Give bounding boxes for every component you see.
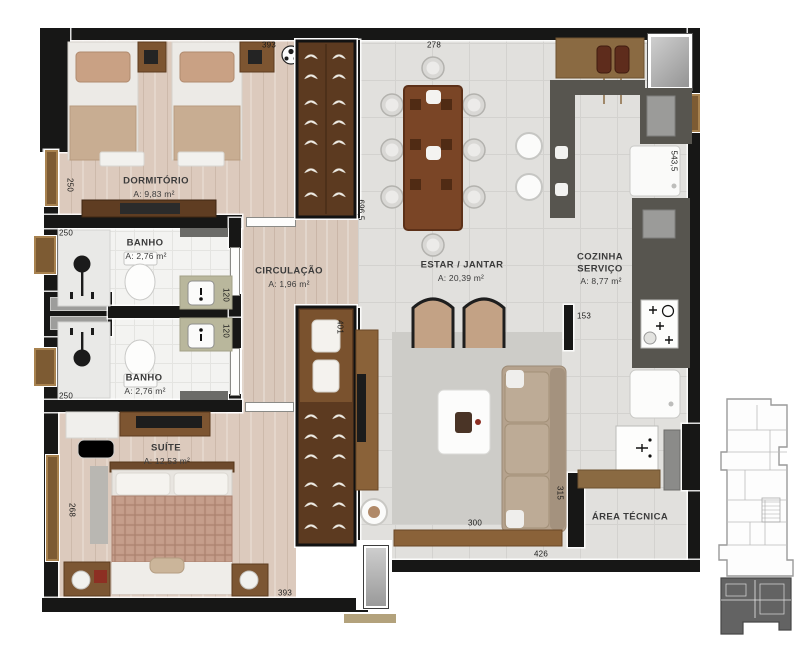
dim-153-kitchen: 153 (577, 312, 591, 321)
kitchen-counter-coffee (640, 88, 692, 144)
coffee-table (438, 390, 490, 454)
dim-426-bottom: 426 (534, 550, 548, 559)
dim-543-right: 543,5 (670, 150, 679, 171)
dim-250-dormitorio: 250 (66, 178, 75, 192)
room-label-circulacao: CIRCULAÇÃO (255, 266, 323, 277)
room-area-cozinha: A: 8,77 m² (580, 276, 621, 286)
dim-300-living: 300 (468, 519, 482, 528)
room-label-dormitorio: DORMITÓRIO (123, 176, 189, 187)
key-plan (719, 399, 793, 634)
side-table-round (361, 499, 387, 525)
dim-120-b: 120 (222, 324, 231, 338)
room-label-cozinha-1: COZINHA (577, 252, 623, 263)
dim-250-banho2: 250 (59, 392, 73, 401)
double-bed-suite (110, 462, 234, 594)
dim-696-hall: 696,5 (357, 199, 366, 220)
mirror-banho2 (180, 391, 228, 400)
dim-120-a: 120 (222, 288, 231, 302)
room-label-estar-jantar: ESTAR / JANTAR (421, 260, 504, 271)
bar-stools (516, 133, 542, 200)
room-area-banho2: A: 2,76 m² (124, 386, 165, 396)
wardrobe-dormitorio (294, 38, 358, 220)
room-label-banho2: BANHO (126, 373, 163, 384)
mirror-banho1 (180, 228, 228, 237)
room-area-estar-jantar: A: 20,39 m² (438, 273, 484, 283)
floor-plan: DORMITÓRIO A: 9,83 m² BANHO A: 2,76 m² C… (0, 0, 809, 650)
sideboard-living (394, 530, 562, 546)
room-area-dormitorio: A: 9,83 m² (133, 189, 174, 199)
kitchen-sink (630, 370, 680, 418)
dim-401-closet: 401 (336, 320, 345, 334)
cooktop (641, 300, 678, 348)
room-label-cozinha-2: SERVIÇO (577, 264, 622, 275)
room-area-circulacao: A: 1,96 m² (268, 279, 309, 289)
tv-cabinet-living (356, 330, 378, 490)
room-area-banho1: A: 2,76 m² (125, 251, 166, 261)
dresser-dormitorio (82, 200, 216, 217)
armchair-1 (413, 299, 453, 348)
dim-268-suite: 268 (68, 503, 77, 517)
sofa (502, 366, 566, 532)
room-area-suite: A: 12,53 m² (144, 456, 190, 466)
furniture-layer (0, 0, 809, 650)
dim-278-top: 278 (427, 41, 441, 50)
suite-tv-dresser (66, 412, 210, 458)
area-tecnica-shelf (578, 470, 660, 488)
dim-315-area-tecnica: 315 (556, 486, 565, 500)
nightstand-suite-right (232, 564, 268, 596)
armchair-2 (464, 299, 504, 348)
dining-table (381, 57, 485, 256)
nightstand-dorm-1 (138, 42, 166, 72)
single-bed-2 (172, 42, 242, 166)
room-label-area-tecnica: ÁREA TÉCNICA (592, 512, 668, 523)
room-label-suite: SUÍTE (151, 443, 181, 454)
nightstand-suite-left (64, 562, 110, 596)
dim-250-banho1: 250 (59, 229, 73, 238)
dim-393-bottom: 393 (278, 589, 292, 598)
shower-banho1 (58, 230, 110, 306)
suite-runner-rug (90, 466, 108, 544)
single-bed-1 (68, 42, 144, 166)
dim-393-top: 393 (262, 41, 276, 50)
room-label-banho1: BANHO (127, 238, 164, 249)
wardrobe-suite (294, 304, 358, 548)
shower-banho2 (58, 322, 110, 398)
